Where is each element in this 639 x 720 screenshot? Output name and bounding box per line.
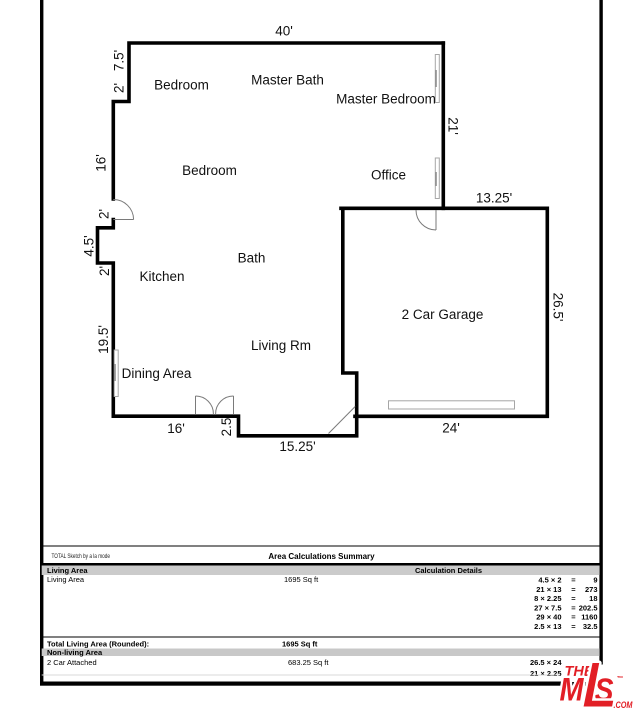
svg-text:21 × 13: 21 × 13 — [536, 585, 561, 594]
svg-text:Living Area: Living Area — [47, 566, 88, 575]
svg-text:=: = — [571, 613, 576, 622]
svg-text:M: M — [560, 672, 585, 708]
svg-text:2.5 × 13: 2.5 × 13 — [534, 622, 561, 631]
svg-text:1160: 1160 — [581, 613, 597, 622]
svg-text:Master Bedroom: Master Bedroom — [336, 91, 436, 106]
svg-text:9: 9 — [593, 576, 597, 585]
svg-text:Bath: Bath — [238, 250, 266, 265]
svg-text:™: ™ — [617, 676, 624, 683]
svg-text:=: = — [571, 594, 576, 603]
svg-text:Area Calculations Summary: Area Calculations Summary — [268, 552, 375, 561]
svg-text:Kitchen: Kitchen — [139, 269, 184, 284]
svg-text:16': 16' — [167, 421, 185, 436]
svg-text:Bedroom: Bedroom — [154, 77, 209, 92]
svg-text:24': 24' — [442, 420, 460, 435]
svg-text:8 × 2.25: 8 × 2.25 — [534, 594, 561, 603]
svg-text:2.5: 2.5 — [219, 418, 234, 437]
svg-text:2 Car Garage: 2 Car Garage — [402, 307, 484, 322]
svg-text:Non-living Area: Non-living Area — [47, 648, 103, 657]
svg-text:TOTAL Sketch by a la mode: TOTAL Sketch by a la mode — [52, 554, 111, 560]
svg-text:2': 2' — [97, 266, 112, 276]
svg-text:26.5 × 24: 26.5 × 24 — [530, 658, 562, 667]
svg-text:Living Area: Living Area — [47, 575, 85, 584]
svg-text:Office: Office — [371, 167, 406, 182]
svg-text:2': 2' — [112, 83, 127, 93]
svg-text:Master Bath: Master Bath — [251, 72, 324, 87]
svg-text:26.5': 26.5' — [551, 293, 566, 322]
svg-text:Calculation Details: Calculation Details — [415, 566, 482, 575]
svg-text:4.5 × 2: 4.5 × 2 — [538, 576, 561, 585]
svg-text:27 × 7.5: 27 × 7.5 — [534, 603, 561, 612]
svg-text:21 × 2.25: 21 × 2.25 — [530, 669, 562, 678]
svg-text:=: = — [571, 585, 576, 594]
svg-text:2 Car Attached: 2 Car Attached — [47, 658, 97, 667]
svg-text:18: 18 — [589, 594, 597, 603]
svg-text:40': 40' — [275, 23, 293, 38]
svg-text:.COM: .COM — [614, 700, 633, 710]
svg-text:=: = — [571, 622, 576, 631]
svg-text:4.5': 4.5' — [82, 235, 97, 256]
svg-text:Dining Area: Dining Area — [122, 366, 192, 381]
svg-text:=: = — [571, 576, 576, 585]
svg-text:32.5: 32.5 — [583, 622, 598, 631]
svg-text:7.5': 7.5' — [112, 50, 127, 71]
svg-text:1695 Sq ft: 1695 Sq ft — [284, 575, 319, 584]
svg-text:15.25': 15.25' — [279, 439, 315, 454]
svg-text:683.25 Sq ft: 683.25 Sq ft — [288, 658, 329, 667]
svg-text:=: = — [571, 603, 576, 612]
svg-text:19.5': 19.5' — [96, 325, 111, 354]
svg-text:Living Rm: Living Rm — [251, 338, 311, 353]
svg-text:Bedroom: Bedroom — [182, 163, 237, 178]
svg-text:16': 16' — [94, 154, 109, 172]
svg-text:2': 2' — [97, 209, 112, 219]
svg-text:13.25': 13.25' — [476, 190, 512, 205]
svg-text:1695 Sq ft: 1695 Sq ft — [282, 640, 318, 649]
svg-text:21': 21' — [446, 117, 461, 135]
svg-text:29 × 40: 29 × 40 — [536, 613, 561, 622]
svg-text:273: 273 — [585, 585, 598, 594]
svg-text:202.5: 202.5 — [579, 603, 598, 612]
